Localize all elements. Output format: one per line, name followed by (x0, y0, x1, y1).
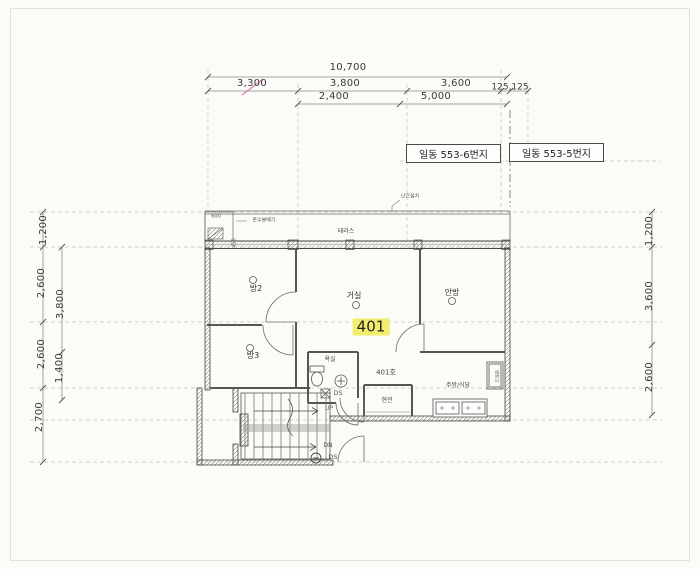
dim-overall-width: 10,700 (330, 63, 367, 73)
dim-note-450: 450 (233, 238, 238, 248)
dim-note-600: 600 (211, 215, 221, 220)
window-band (205, 240, 510, 250)
room-label-entry: 현관 (381, 398, 392, 404)
room-label-room2: 방2 (250, 285, 262, 293)
unit-number-label: 401호 (376, 370, 396, 377)
dim-top-2400: 2,400 (319, 92, 349, 102)
stair-dn-label: DN (323, 443, 332, 449)
dim-top-3300: 3,300 (237, 79, 267, 89)
duct-shaft-icon (321, 389, 330, 398)
dim-left-inner-3800: 3,800 (56, 289, 66, 319)
refrigerator-label: 냉장고 (493, 370, 498, 382)
dim-left-1200: 1,200 (39, 215, 49, 245)
lot-label-553-5: 일동 553-5번지 (509, 143, 604, 162)
dim-left-inner-1400: 1,400 (55, 353, 65, 383)
room-label-master: 안방 (445, 289, 460, 297)
kitchen-counter (433, 399, 487, 417)
dim-left-2700: 2,700 (35, 402, 45, 432)
dim-left-2600b: 2,600 (37, 339, 47, 369)
lot-label-553-6: 일동 553-6번지 (406, 144, 501, 163)
floorplan-sheet: 10,700 3,300 3,800 3,600 125,125 2,400 5… (0, 0, 700, 569)
dim-right-3600: 3,600 (645, 281, 655, 311)
unit-highlight-label: 401 (353, 319, 390, 336)
staircase (241, 393, 330, 463)
stair-up-label: UP (325, 406, 333, 412)
lot-label-553-6-text: 일동 553-6번지 (419, 146, 488, 161)
dim-right-2600: 2,600 (645, 362, 655, 392)
dim-top-5000: 5,000 (421, 92, 451, 102)
dim-right-1200: 1,200 (645, 216, 655, 246)
lot-label-553-5-text: 일동 553-5번지 (522, 145, 591, 160)
dim-top-3600: 3,600 (441, 79, 471, 89)
dim-left-2600a: 2,600 (37, 268, 47, 298)
railing-note: 난간설치 (401, 195, 419, 200)
dim-top-125: 125,125 (491, 84, 528, 93)
room-label-bath: 욕실 (324, 357, 335, 363)
exterior-walls (197, 248, 510, 465)
door-swings (263, 292, 424, 462)
dim-top-3800: 3,800 (330, 79, 360, 89)
room-label-room3: 방3 (247, 352, 259, 360)
bath-fixtures (310, 366, 347, 387)
terrace-railing (205, 200, 510, 241)
ds-top-label: DS (333, 390, 342, 397)
ds-bottom-label: DS (328, 454, 337, 461)
room-label-kitchen: 주방/식당 (446, 383, 470, 389)
manifold-note: 온수분배기 (252, 219, 275, 224)
room-label-terrace: 테라스 (338, 229, 355, 235)
construction-lines (30, 70, 662, 462)
room-label-living: 거실 (347, 292, 362, 300)
